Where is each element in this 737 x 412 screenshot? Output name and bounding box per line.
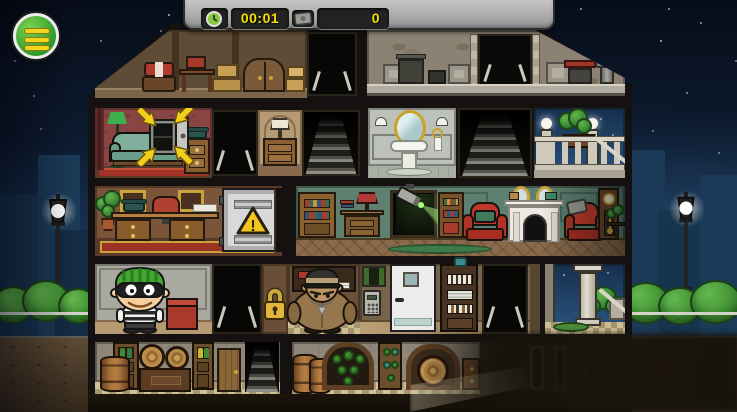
cash-icon xyxy=(293,11,312,26)
bedroom xyxy=(95,108,212,178)
plant-pot xyxy=(101,218,115,231)
chimney xyxy=(398,59,424,84)
floor4-stairwell-right[interactable] xyxy=(458,108,532,178)
stone-quoins xyxy=(532,34,540,86)
curtain xyxy=(379,268,384,285)
balcony xyxy=(534,108,625,178)
mantel-item xyxy=(509,192,519,200)
wall-end xyxy=(530,264,540,334)
sidewalk-left xyxy=(0,312,92,340)
barrel-face xyxy=(139,344,165,370)
drawer xyxy=(350,229,374,236)
roof-door[interactable] xyxy=(478,34,532,86)
table-leg xyxy=(182,75,186,92)
table-lamp-base xyxy=(278,130,282,138)
shelf-drawer xyxy=(447,318,473,329)
timer-value: 00:01 xyxy=(241,10,279,26)
ground-dirt-left xyxy=(0,338,92,412)
stone-quoins xyxy=(470,34,478,86)
room-shadow xyxy=(542,186,625,256)
tall-bookshelf xyxy=(438,192,464,238)
red-chimney xyxy=(568,68,592,84)
keypad-screen xyxy=(367,295,377,300)
round-rug xyxy=(388,244,492,254)
timer-icon-chip xyxy=(201,8,228,29)
guard-character xyxy=(284,264,360,334)
storage-box xyxy=(287,66,305,78)
bath-rug xyxy=(386,168,432,176)
curtain xyxy=(95,108,104,170)
menu-button[interactable] xyxy=(13,13,59,59)
desk-phone-handset xyxy=(121,199,147,204)
globe-lamp xyxy=(541,118,552,129)
hamburger-menu-icon xyxy=(24,28,50,51)
crate-box xyxy=(186,56,206,69)
drawer-knob xyxy=(131,234,135,238)
floor2-hallway xyxy=(360,264,540,334)
wine-arch-rack xyxy=(322,342,374,390)
door-window xyxy=(403,272,419,287)
paper-stack xyxy=(447,290,473,300)
shelf-books xyxy=(447,304,473,314)
cabinet-doors xyxy=(304,223,330,235)
hud-bar: 00:01 0 xyxy=(183,0,555,30)
floor4-stairwell[interactable] xyxy=(302,110,360,176)
keypad-buttons xyxy=(367,303,378,313)
green-bottle xyxy=(127,348,132,358)
closet-seam xyxy=(264,62,266,92)
fireplace-column xyxy=(513,212,520,242)
bookcase xyxy=(298,192,336,238)
door-handle xyxy=(395,298,404,302)
door-hinge xyxy=(219,196,224,205)
bottle-rack xyxy=(192,342,214,390)
book-stack xyxy=(341,204,354,208)
rooftop-ledge xyxy=(367,84,625,96)
shelf-books xyxy=(304,199,330,208)
robber-character[interactable] xyxy=(98,264,182,334)
money-value: 0 xyxy=(372,10,380,26)
armchair-cushion xyxy=(474,210,496,223)
bathroom xyxy=(368,108,456,178)
armchair-front xyxy=(466,228,504,241)
drawer-knob xyxy=(185,234,189,238)
game-scene: ! xyxy=(0,0,737,412)
office: ! xyxy=(95,186,282,256)
desk-drawers xyxy=(115,219,151,241)
drawer xyxy=(151,376,181,385)
bottle-end xyxy=(383,348,391,356)
cardboard-box xyxy=(216,64,238,78)
entrance-porch[interactable] xyxy=(545,264,625,334)
warning-glyph: ! xyxy=(250,218,255,235)
metal-vent-elbow xyxy=(595,60,615,68)
curtained-window xyxy=(362,266,386,287)
closet-knob xyxy=(258,76,262,80)
bottle-end xyxy=(332,354,342,364)
shelf-books xyxy=(443,198,459,206)
side-table-body xyxy=(344,215,380,237)
hideout-room xyxy=(95,264,212,334)
shelf-books xyxy=(304,211,330,220)
yellow-bottle xyxy=(198,348,203,358)
shelf-books xyxy=(447,274,473,285)
storage-box xyxy=(285,78,305,92)
porch-column-shaft xyxy=(579,272,597,320)
sink-bowl xyxy=(390,140,428,152)
bottle-end xyxy=(349,365,359,375)
hall-door[interactable] xyxy=(390,264,436,332)
bottle-end xyxy=(383,361,391,369)
drawer xyxy=(268,154,292,162)
money-icon-chip xyxy=(292,10,314,27)
desk-drawers xyxy=(169,219,205,241)
rooftop-terrace xyxy=(367,30,625,96)
floor-lamp-shade xyxy=(107,112,127,124)
star-field xyxy=(0,0,2,2)
balcony-stars xyxy=(542,114,544,116)
barrel xyxy=(100,356,130,392)
bottle-end xyxy=(387,374,395,382)
door-kickplate xyxy=(394,318,432,326)
shelf-books xyxy=(443,210,459,218)
attic-storage-room xyxy=(95,30,307,98)
balcony-plant xyxy=(576,118,592,134)
door-hinge xyxy=(219,237,224,246)
living-room xyxy=(296,186,625,256)
bottle-end xyxy=(337,365,347,375)
attic-elevator[interactable] xyxy=(307,32,357,96)
bottle-end xyxy=(343,350,354,361)
drawer-knob xyxy=(185,225,189,229)
curtain xyxy=(364,268,369,285)
bottle-end xyxy=(343,376,353,386)
closet-knob xyxy=(269,76,273,80)
door-knob xyxy=(234,370,238,374)
timer-display: 00:01 xyxy=(231,8,289,29)
barrel-cabinet xyxy=(139,368,191,392)
bottle-shelf xyxy=(378,342,402,390)
wall-sconce xyxy=(436,117,448,126)
roof-vent xyxy=(428,70,446,84)
roof-door-leaf xyxy=(483,64,491,82)
paper-stack xyxy=(193,204,217,212)
wall-safe[interactable] xyxy=(136,108,196,166)
red-chimney-cap xyxy=(564,60,596,68)
wine-cellar xyxy=(95,342,280,394)
security-door[interactable]: ! xyxy=(222,188,280,252)
drawer xyxy=(350,220,374,227)
closet-doors[interactable] xyxy=(243,58,285,92)
floor4-elevator[interactable] xyxy=(212,110,258,176)
desk-top xyxy=(111,212,219,219)
door-slat xyxy=(234,235,272,244)
balcony-floor xyxy=(534,170,625,178)
hall-bookshelf xyxy=(440,264,478,332)
open-door-leaf xyxy=(274,188,282,252)
guard-room xyxy=(288,264,360,334)
cellar-door[interactable] xyxy=(217,348,241,392)
green-bottle xyxy=(204,348,209,358)
drawer xyxy=(268,144,292,152)
doormat[interactable] xyxy=(553,322,589,332)
clock-icon xyxy=(205,10,223,28)
wall-sconce xyxy=(375,117,387,126)
table-lamp-shade xyxy=(270,118,290,130)
armchair xyxy=(462,202,508,244)
keypad[interactable] xyxy=(363,290,381,316)
jar xyxy=(454,257,467,267)
porch-stars xyxy=(559,270,561,272)
stairs-shadow xyxy=(245,342,279,392)
floor2-elevator[interactable] xyxy=(212,264,262,334)
porch-column-capital xyxy=(573,264,603,272)
cellar-stairwell[interactable] xyxy=(245,342,279,392)
money-display: 0 xyxy=(317,8,389,29)
warning-triangle-icon: ! xyxy=(236,206,270,236)
bottle-end xyxy=(391,361,399,369)
nightstand xyxy=(263,138,297,166)
suitcase-stripe xyxy=(155,62,163,77)
towel xyxy=(434,137,442,151)
floor2-elevator-right[interactable] xyxy=(482,264,528,334)
barrel-face xyxy=(165,346,189,370)
bottle-end xyxy=(355,354,365,364)
trunk xyxy=(142,76,176,92)
cardboard-box xyxy=(212,78,242,92)
rooftop-pedestal xyxy=(448,64,470,84)
floor4-hallway xyxy=(258,110,302,176)
shelf-box xyxy=(443,222,459,234)
roof-door-leaf xyxy=(518,64,526,82)
table-lamp-shade xyxy=(356,192,378,204)
rack-shelf xyxy=(197,362,209,372)
drawer-knob xyxy=(131,225,135,229)
rack-cabinet xyxy=(197,374,209,388)
stairs-shadow xyxy=(304,112,358,174)
balusters xyxy=(536,142,623,164)
bottle-end xyxy=(391,348,399,356)
stairs-shadow xyxy=(460,110,530,176)
